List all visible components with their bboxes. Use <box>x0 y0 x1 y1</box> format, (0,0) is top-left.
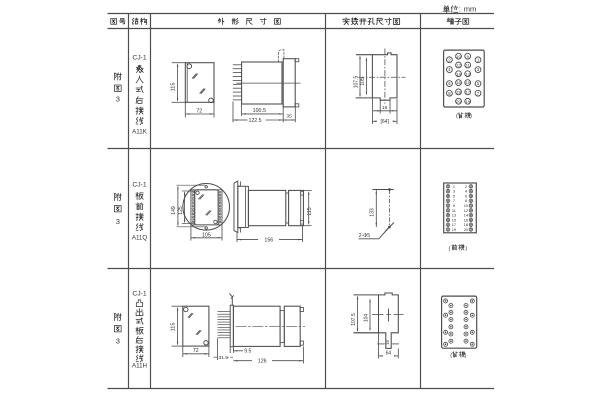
svg-text:(: ( <box>449 246 451 252</box>
svg-text:122.5: 122.5 <box>249 118 262 124</box>
svg-text:100.5: 100.5 <box>253 108 266 114</box>
svg-text:mm: mm <box>464 5 477 14</box>
svg-text:107.5: 107.5 <box>351 313 357 326</box>
svg-text:(: ( <box>450 353 452 359</box>
svg-text:35: 35 <box>286 113 292 119</box>
svg-text::: : <box>459 5 461 14</box>
svg-text:19: 19 <box>452 227 456 232</box>
svg-text:16: 16 <box>456 80 461 85</box>
svg-text:CJ-1: CJ-1 <box>132 182 147 189</box>
svg-text:3: 3 <box>116 95 120 104</box>
svg-text:17: 17 <box>465 89 470 94</box>
svg-text:CJ-1: CJ-1 <box>132 55 147 62</box>
svg-text:): ) <box>465 246 467 252</box>
svg-text:16: 16 <box>382 105 388 111</box>
svg-text:115: 115 <box>307 207 313 215</box>
svg-text:156: 156 <box>264 237 273 243</box>
svg-text:149: 149 <box>171 206 177 215</box>
svg-text:72: 72 <box>196 108 202 114</box>
svg-text:105: 105 <box>202 232 211 238</box>
svg-text:19: 19 <box>465 99 470 104</box>
svg-text:3: 3 <box>116 217 120 226</box>
svg-text:9.5: 9.5 <box>244 349 251 355</box>
svg-text:31.5: 31.5 <box>219 355 229 361</box>
svg-text:125: 125 <box>178 206 184 215</box>
svg-text:16: 16 <box>385 340 390 345</box>
svg-text:20: 20 <box>456 99 461 104</box>
svg-text:18: 18 <box>456 89 461 94</box>
svg-text:104: 104 <box>364 314 370 323</box>
svg-text:72: 72 <box>193 348 199 354</box>
svg-text:133: 133 <box>370 208 376 217</box>
svg-text:A11K: A11K <box>132 129 148 136</box>
svg-text:10: 10 <box>456 54 461 59</box>
svg-text:[64]: [64] <box>381 119 390 125</box>
svg-text:15: 15 <box>465 80 470 85</box>
svg-text:14: 14 <box>456 71 461 76</box>
svg-text:(: ( <box>456 114 458 120</box>
svg-text:64: 64 <box>386 351 392 357</box>
svg-text:115: 115 <box>171 323 177 332</box>
svg-text:2-Φ5: 2-Φ5 <box>359 233 370 239</box>
svg-text:): ) <box>470 114 472 120</box>
svg-text:A11H: A11H <box>132 363 147 370</box>
svg-text:): ) <box>465 353 467 359</box>
svg-text:105: 105 <box>360 77 366 86</box>
svg-text:CJ-1: CJ-1 <box>132 291 147 298</box>
svg-text:12: 12 <box>456 63 461 68</box>
svg-text:126: 126 <box>258 359 267 365</box>
svg-text:107.5: 107.5 <box>353 76 359 89</box>
svg-text:115: 115 <box>170 83 176 92</box>
svg-text:A11Q: A11Q <box>132 235 148 242</box>
svg-text:3: 3 <box>116 337 120 346</box>
svg-text:13: 13 <box>465 71 470 76</box>
